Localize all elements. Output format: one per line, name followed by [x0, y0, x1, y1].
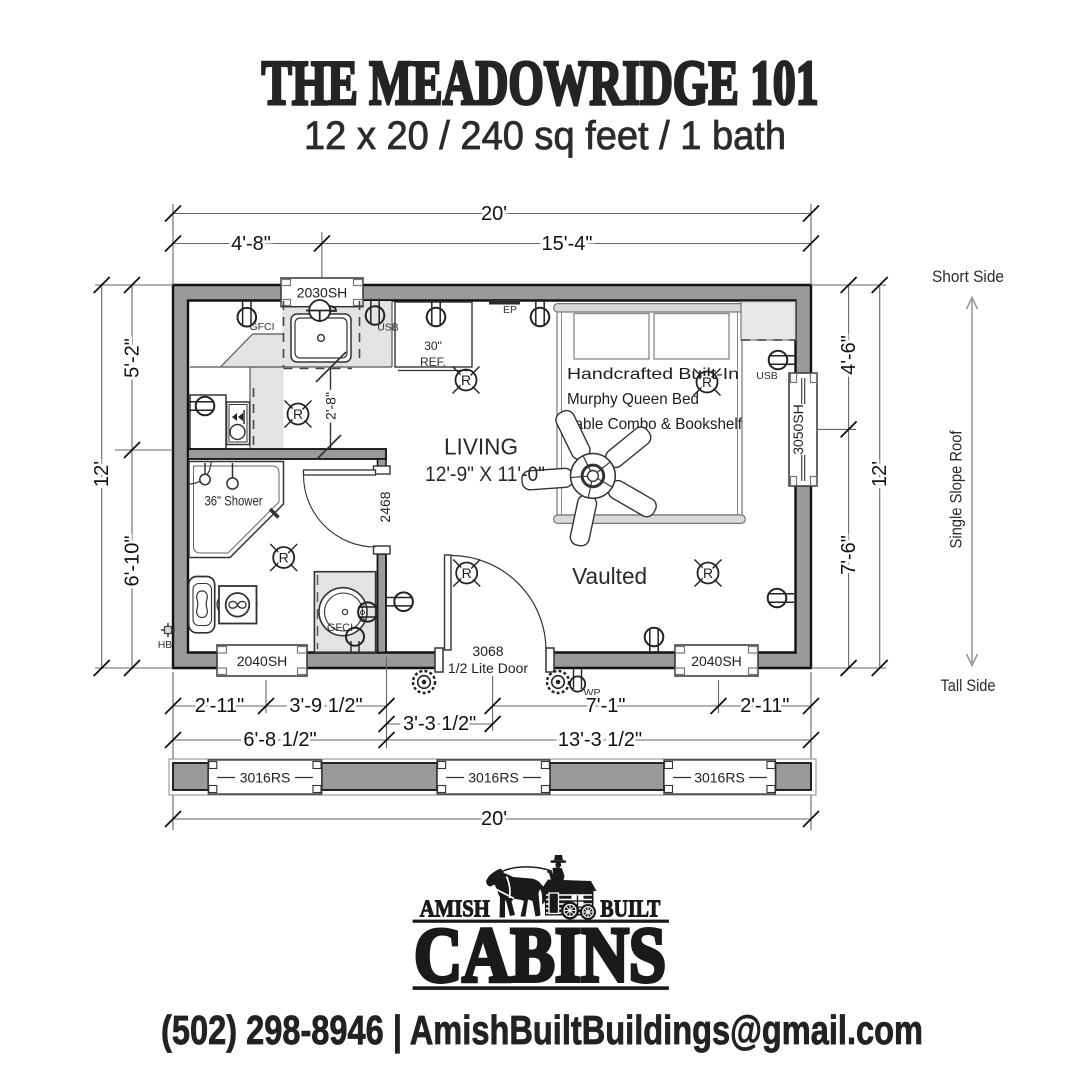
svg-text:7'-1": 7'-1"	[586, 695, 626, 717]
svg-text:GFCI: GFCI	[249, 321, 274, 333]
svg-text:Single Slope Roof: Single Slope Roof	[947, 430, 966, 548]
svg-text:6'-8 1/2": 6'-8 1/2"	[243, 729, 316, 751]
svg-text:3068: 3068	[472, 643, 503, 659]
svg-text:Table Combo & Bookshelf: Table Combo & Bookshelf	[567, 416, 743, 433]
svg-text:Vaulted: Vaulted	[572, 563, 647, 589]
svg-text:Tall Side: Tall Side	[941, 676, 996, 695]
svg-text:Short Side: Short Side	[932, 267, 1004, 286]
svg-text:4'-8": 4'-8"	[231, 233, 271, 255]
svg-text:2'-11": 2'-11"	[740, 695, 789, 717]
svg-text:20': 20'	[481, 203, 507, 225]
svg-text:3'-9 1/2": 3'-9 1/2"	[289, 695, 362, 717]
svg-text:3'-3 1/2": 3'-3 1/2"	[403, 713, 476, 735]
svg-text:CABINS: CABINS	[414, 911, 666, 998]
svg-text:6'-10": 6'-10"	[122, 536, 144, 587]
svg-text:THE MEADOWRIDGE 101: THE MEADOWRIDGE 101	[262, 47, 819, 118]
svg-text:3050SH: 3050SH	[790, 404, 806, 455]
svg-text:1/2 Lite Door: 1/2 Lite Door	[448, 660, 528, 676]
svg-text:4'-6": 4'-6"	[838, 335, 860, 375]
svg-text:3016RS: 3016RS	[694, 770, 745, 786]
svg-text:12 x 20 / 240 sq feet / 1 bath: 12 x 20 / 240 sq feet / 1 bath	[304, 114, 786, 158]
svg-text:30": 30"	[424, 339, 442, 353]
svg-text:3016RS: 3016RS	[468, 770, 519, 786]
svg-text:2040SH: 2040SH	[237, 653, 288, 669]
svg-text:5'-2": 5'-2"	[122, 338, 144, 378]
svg-text:LIVING: LIVING	[444, 434, 518, 460]
svg-text:12': 12'	[91, 461, 113, 487]
svg-text:Murphy Queen Bed: Murphy Queen Bed	[567, 391, 699, 408]
svg-text:3016RS: 3016RS	[240, 770, 291, 786]
svg-text:12': 12'	[869, 461, 891, 487]
svg-text:HB: HB	[158, 639, 173, 651]
svg-text:2030SH: 2030SH	[297, 285, 348, 301]
svg-text:USB: USB	[756, 370, 778, 382]
svg-text:36" Shower: 36" Shower	[205, 493, 263, 509]
svg-text:12'-9" X 11'-0": 12'-9" X 11'-0"	[425, 463, 545, 486]
svg-text:2468: 2468	[377, 491, 393, 522]
svg-text:13'-3 1/2": 13'-3 1/2"	[558, 729, 642, 751]
svg-text:GFCI: GFCI	[327, 622, 353, 634]
svg-text:15'-4": 15'-4"	[542, 233, 593, 255]
svg-text:(502) 298-8946 | AmishBuiltBui: (502) 298-8946 | AmishBuiltBuildings@gma…	[161, 1007, 923, 1053]
svg-text:REF.: REF.	[420, 355, 446, 369]
svg-text:USB: USB	[377, 322, 399, 334]
svg-text:2040SH: 2040SH	[691, 653, 742, 669]
svg-text:2'-8": 2'-8"	[323, 392, 339, 420]
svg-text:EP: EP	[503, 304, 517, 316]
svg-text:20': 20'	[481, 808, 507, 830]
svg-text:2'-11": 2'-11"	[195, 695, 244, 717]
svg-text:7'-6": 7'-6"	[838, 535, 860, 575]
